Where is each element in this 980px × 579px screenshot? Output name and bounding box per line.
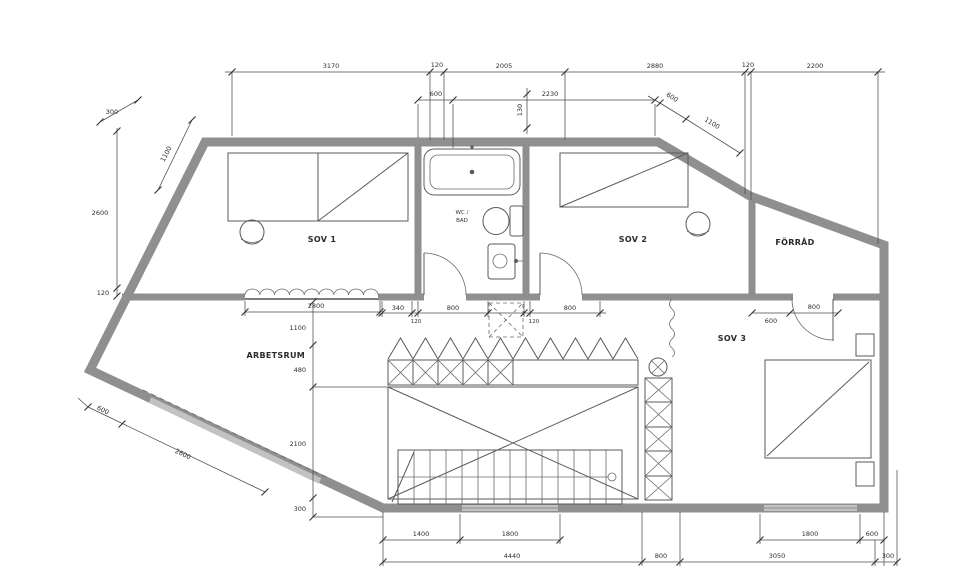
dim-label: 300 (882, 552, 894, 560)
room-label-sov2: SOV 2 (619, 235, 647, 244)
dim-label: 120 (431, 61, 443, 69)
dim-label: 300 (294, 505, 306, 513)
sov2-chair-icon (686, 212, 710, 236)
dim-label: 340 (392, 304, 404, 312)
dimension-labels: 3170 120 2005 2880 120 2200 600 2230 130… (92, 61, 894, 560)
dim-label: 1100 (289, 324, 306, 332)
dim-label: 2200 (807, 62, 824, 70)
dim-label: 2100 (289, 440, 306, 448)
dim-chain-bottom-row2 (380, 470, 901, 566)
dim-label: 1400 (413, 530, 430, 538)
dim-label: 1800 (802, 530, 819, 538)
sov1-chair-icon (240, 220, 264, 244)
dim-label: 2005 (496, 62, 513, 70)
dim-label: 800 (447, 304, 459, 312)
dim-label: 3170 (323, 62, 340, 70)
dim-label: 600 (96, 404, 111, 417)
open-to-below-cross (388, 387, 638, 499)
dim-label: 120 (411, 319, 422, 325)
floor-plan-canvas: 3170 120 2005 2880 120 2200 600 2230 130… (0, 0, 980, 579)
x-braced-railing-horizontal (388, 360, 638, 385)
dim-label: 600 (765, 317, 777, 325)
dim-label: 800 (564, 304, 576, 312)
dim-label: 300 (106, 108, 118, 116)
sawtooth-edge (388, 338, 638, 359)
dim-chain-bottom-row1 (380, 512, 888, 566)
dim-label: 600 (866, 530, 878, 538)
room-label-forrad: FÖRRÅD (775, 237, 814, 247)
dim-label: 130 (516, 104, 524, 116)
room-label-arbetsrum: ARBETSRUM (247, 351, 305, 360)
x-braced-railing-vertical (645, 378, 672, 500)
dim-label: 2800 (308, 302, 325, 310)
circle-cross-column-icon (649, 358, 667, 376)
toilet-icon (483, 206, 523, 236)
dim-label: 480 (294, 366, 306, 374)
dim-label: 120 (529, 319, 540, 325)
sink-icon (488, 244, 523, 279)
room-label-sov3: SOV 3 (718, 334, 746, 343)
dim-label: 600 (665, 91, 680, 104)
door-bath (424, 253, 466, 295)
door-sov2 (540, 253, 582, 295)
sov2-wardrobe-icon (560, 153, 688, 207)
dim-label: 600 (430, 90, 442, 98)
staircase-icon (392, 450, 622, 504)
dim-label: 120 (742, 61, 754, 69)
dim-label: 120 (97, 289, 109, 297)
dim-label: 800 (655, 552, 667, 560)
dim-label: 1800 (502, 530, 519, 538)
room-label-wc-line1: WC / (456, 210, 469, 216)
dim-label: 2600 (92, 209, 109, 217)
room-label-sov1: SOV 1 (308, 235, 337, 244)
window-wavy-wall (245, 289, 378, 299)
dim-label: 4440 (504, 552, 521, 560)
room-label-wc-line2: BAD (456, 218, 468, 224)
dim-label: 1100 (703, 116, 721, 132)
dim-label: 3050 (769, 552, 786, 560)
floor-plan-page: 3170 120 2005 2880 120 2200 600 2230 130… (0, 0, 980, 579)
dim-label: 800 (808, 303, 820, 311)
sov3-bed-icon (765, 334, 874, 486)
dim-label: 2600 (174, 447, 192, 461)
bathtub-icon (424, 145, 520, 195)
sov1-wardrobe-icon (228, 153, 408, 221)
dim-label: 2880 (647, 62, 664, 70)
wall-break-squiggle (670, 299, 675, 357)
room-labels: SOV 1 SOV 2 FÖRRÅD SOV 3 ARBETSRUM WC / … (247, 210, 815, 360)
dim-label: 1100 (159, 145, 174, 163)
dashed-shaft-cross (489, 303, 523, 337)
dim-label: 2230 (542, 90, 559, 98)
